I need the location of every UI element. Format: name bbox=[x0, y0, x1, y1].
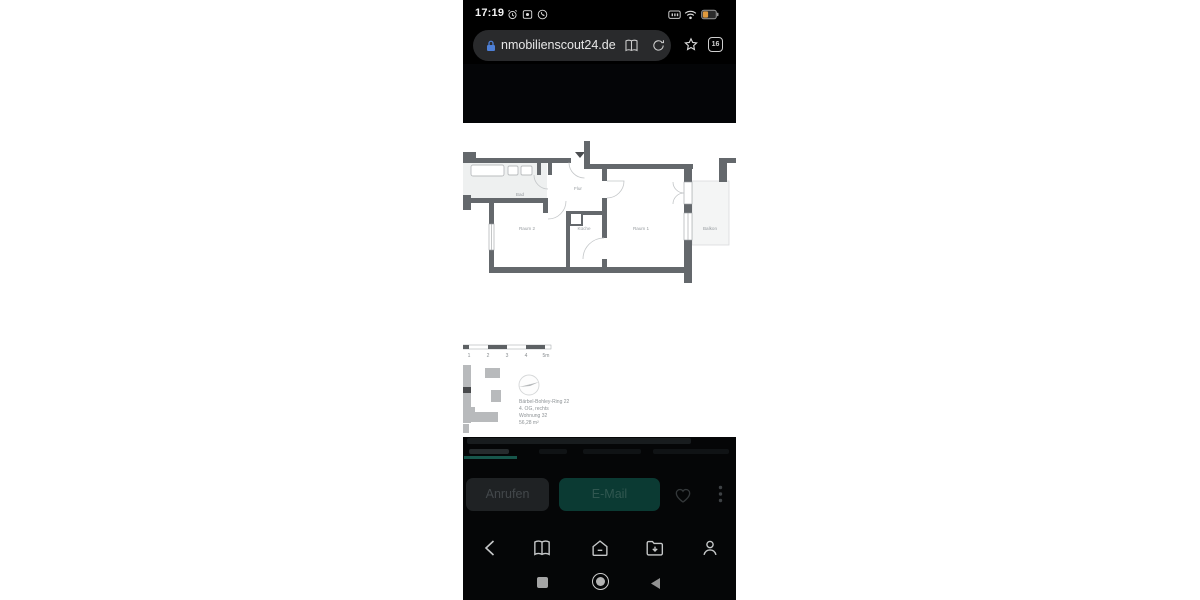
profile-icon[interactable] bbox=[699, 537, 721, 559]
whatsapp-icon bbox=[537, 9, 548, 20]
battery-icon bbox=[701, 9, 719, 20]
site-plan bbox=[463, 360, 525, 435]
plan-info-block: Bärbel-Bohley-Ring 22 4. OG, rechts Wohn… bbox=[519, 399, 569, 427]
dimmed-page-bottom: Anrufen E-Mail bbox=[463, 437, 736, 600]
tab-3[interactable] bbox=[583, 449, 641, 454]
android-home-inner bbox=[596, 577, 605, 586]
tab-uebersicht[interactable] bbox=[469, 449, 509, 454]
android-home-button[interactable] bbox=[592, 573, 609, 590]
room-label-balkon: Balkon bbox=[703, 226, 717, 231]
wifi-icon bbox=[684, 9, 697, 20]
plan-area-line: 56,28 m² bbox=[519, 420, 569, 427]
tab-2[interactable] bbox=[539, 449, 567, 454]
screenshot-canvas: { "status_bar": { "time": "17:19" }, "br… bbox=[0, 0, 1200, 600]
compass-icon bbox=[517, 373, 541, 397]
refresh-icon[interactable] bbox=[650, 37, 667, 54]
clock-time: 17:19 bbox=[475, 7, 504, 19]
home-icon[interactable] bbox=[589, 537, 611, 559]
favorite-heart-icon[interactable] bbox=[673, 485, 693, 504]
url-bar[interactable]: nmobilienscout24.de bbox=[473, 30, 671, 61]
active-tab-underline bbox=[464, 456, 517, 459]
archive-banner: Angebot liegt im Archiv Dieses Angebot w… bbox=[463, 64, 736, 123]
room-label-raum1: Raum 1 bbox=[633, 226, 650, 231]
floorplan-drawing: Bad Flur Raum 2 Küche Raum 1 Balkon bbox=[463, 135, 736, 295]
floorplan-image[interactable]: Bad Flur Raum 2 Küche Raum 1 Balkon 1 2 … bbox=[463, 123, 736, 437]
dimmed-heading-text bbox=[467, 438, 691, 444]
kebab-menu-icon[interactable] bbox=[718, 485, 723, 503]
north-arrow-icon bbox=[575, 152, 585, 158]
room-label-raum2: Raum 2 bbox=[519, 226, 536, 231]
android-recents-button[interactable] bbox=[537, 577, 548, 588]
url-text: nmobilienscout24.de bbox=[501, 38, 616, 52]
volte-icon bbox=[668, 9, 681, 20]
downloads-folder-icon[interactable] bbox=[644, 537, 666, 559]
scale-ruler: 1 2 3 4 5m bbox=[463, 344, 558, 359]
tab-4[interactable] bbox=[653, 449, 729, 454]
bookmark-star-icon[interactable] bbox=[682, 36, 700, 54]
room-label-bad: Bad bbox=[516, 192, 525, 197]
status-bar: 17:19 bbox=[463, 0, 736, 28]
scale-tick: 4 bbox=[525, 353, 528, 359]
alarm-icon bbox=[507, 9, 518, 20]
scale-tick: 2 bbox=[487, 353, 490, 359]
plan-floor-line: 4. OG, rechts bbox=[519, 406, 569, 413]
room-label-flur: Flur bbox=[574, 186, 582, 191]
bookmarks-book-icon[interactable] bbox=[531, 537, 553, 559]
back-button[interactable] bbox=[483, 539, 496, 557]
tab-counter[interactable]: 16 bbox=[708, 37, 723, 52]
room-label-kueche: Küche bbox=[577, 226, 590, 231]
phone-screen: 17:19 bbox=[463, 0, 736, 600]
android-back-button[interactable] bbox=[650, 577, 661, 590]
email-button[interactable]: E-Mail bbox=[559, 478, 660, 511]
lock-icon bbox=[485, 39, 497, 53]
scale-tick: 3 bbox=[506, 353, 509, 359]
screenshot-icon bbox=[522, 9, 533, 20]
plan-unit-line: Wohnung 32 bbox=[519, 413, 569, 420]
plan-address-line: Bärbel-Bohley-Ring 22 bbox=[519, 399, 569, 406]
browser-url-row: nmobilienscout24.de 16 bbox=[463, 28, 736, 64]
scale-tick: 1 bbox=[468, 353, 471, 359]
call-button[interactable]: Anrufen bbox=[466, 478, 549, 511]
scale-tick: 5m bbox=[543, 353, 550, 359]
reader-mode-icon[interactable] bbox=[623, 37, 640, 54]
